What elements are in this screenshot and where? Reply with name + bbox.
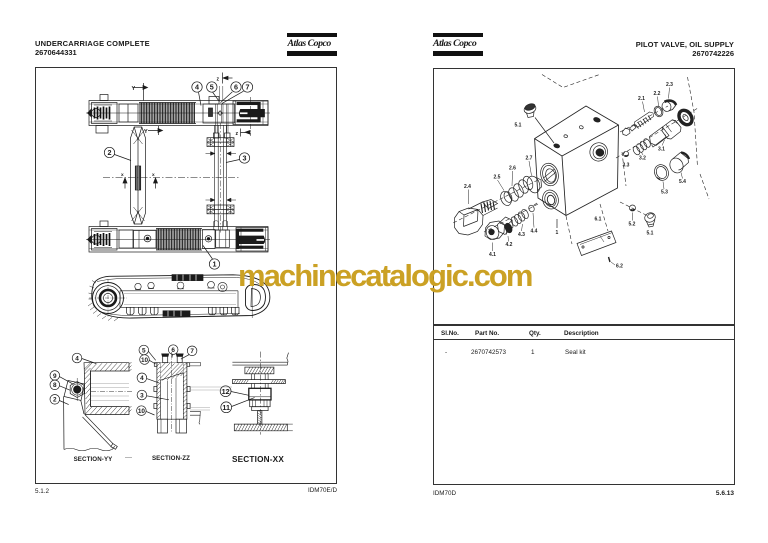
- svg-text:2: 2: [53, 397, 57, 404]
- svg-text:4: 4: [195, 83, 199, 92]
- svg-text:5.1: 5.1: [515, 123, 522, 129]
- svg-text:6: 6: [171, 347, 175, 354]
- svg-text:9: 9: [53, 373, 57, 380]
- svg-text:4: 4: [75, 355, 79, 362]
- svg-text:3.1: 3.1: [658, 147, 665, 153]
- svg-text:SECTION-ZZ: SECTION-ZZ: [152, 455, 190, 462]
- svg-text:1: 1: [213, 260, 217, 269]
- svg-text:5.1: 5.1: [647, 231, 654, 237]
- svg-text:Y: Y: [144, 129, 148, 135]
- svg-text:8: 8: [53, 382, 57, 389]
- svg-text:11: 11: [222, 403, 230, 412]
- svg-text:7: 7: [190, 348, 194, 355]
- svg-text:2.6: 2.6: [509, 166, 516, 172]
- svg-text:7: 7: [246, 83, 250, 92]
- svg-text:4.4: 4.4: [531, 229, 538, 235]
- svg-text:3: 3: [140, 392, 144, 399]
- svg-text:4.2: 4.2: [506, 242, 513, 248]
- svg-text:3: 3: [243, 154, 247, 163]
- svg-text:3.2: 3.2: [639, 156, 646, 162]
- svg-text:4: 4: [140, 375, 144, 382]
- svg-text:z: z: [217, 77, 220, 83]
- svg-text:5.4: 5.4: [679, 179, 686, 185]
- svg-text:Y: Y: [132, 86, 136, 92]
- svg-text:x: x: [152, 173, 155, 178]
- svg-text:2.7: 2.7: [526, 156, 533, 162]
- svg-text:x: x: [121, 173, 124, 178]
- svg-text:10: 10: [141, 357, 149, 364]
- svg-text:3.3: 3.3: [623, 163, 630, 169]
- svg-text:SECTION-YY: SECTION-YY: [74, 456, 114, 463]
- svg-text:1: 1: [556, 230, 559, 236]
- svg-text:2.4: 2.4: [464, 184, 471, 190]
- svg-text:5: 5: [142, 347, 146, 354]
- svg-text:10: 10: [138, 408, 146, 415]
- svg-text:6: 6: [234, 83, 238, 92]
- svg-text:z: z: [236, 131, 239, 137]
- svg-text:6.2: 6.2: [616, 264, 623, 270]
- svg-text:12: 12: [222, 387, 230, 396]
- svg-text:SECTION-XX: SECTION-XX: [232, 455, 284, 464]
- svg-text:2: 2: [108, 148, 112, 157]
- svg-text:5.3: 5.3: [661, 190, 668, 196]
- svg-text:2.3: 2.3: [666, 82, 673, 88]
- svg-text:5.2: 5.2: [629, 222, 636, 228]
- svg-text:4.3: 4.3: [518, 232, 525, 238]
- svg-text:6.1: 6.1: [595, 217, 602, 223]
- svg-text:2.1: 2.1: [638, 96, 645, 102]
- svg-text:2.2: 2.2: [654, 91, 661, 97]
- svg-text:5: 5: [210, 83, 214, 92]
- svg-text:2.5: 2.5: [494, 175, 501, 181]
